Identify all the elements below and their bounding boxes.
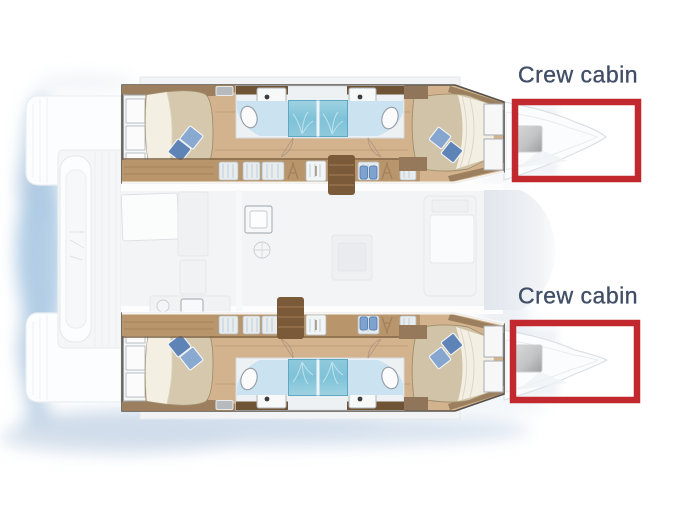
svg-text:Crew cabin: Crew cabin bbox=[518, 283, 638, 309]
svg-text:Crew cabin: Crew cabin bbox=[518, 62, 638, 88]
